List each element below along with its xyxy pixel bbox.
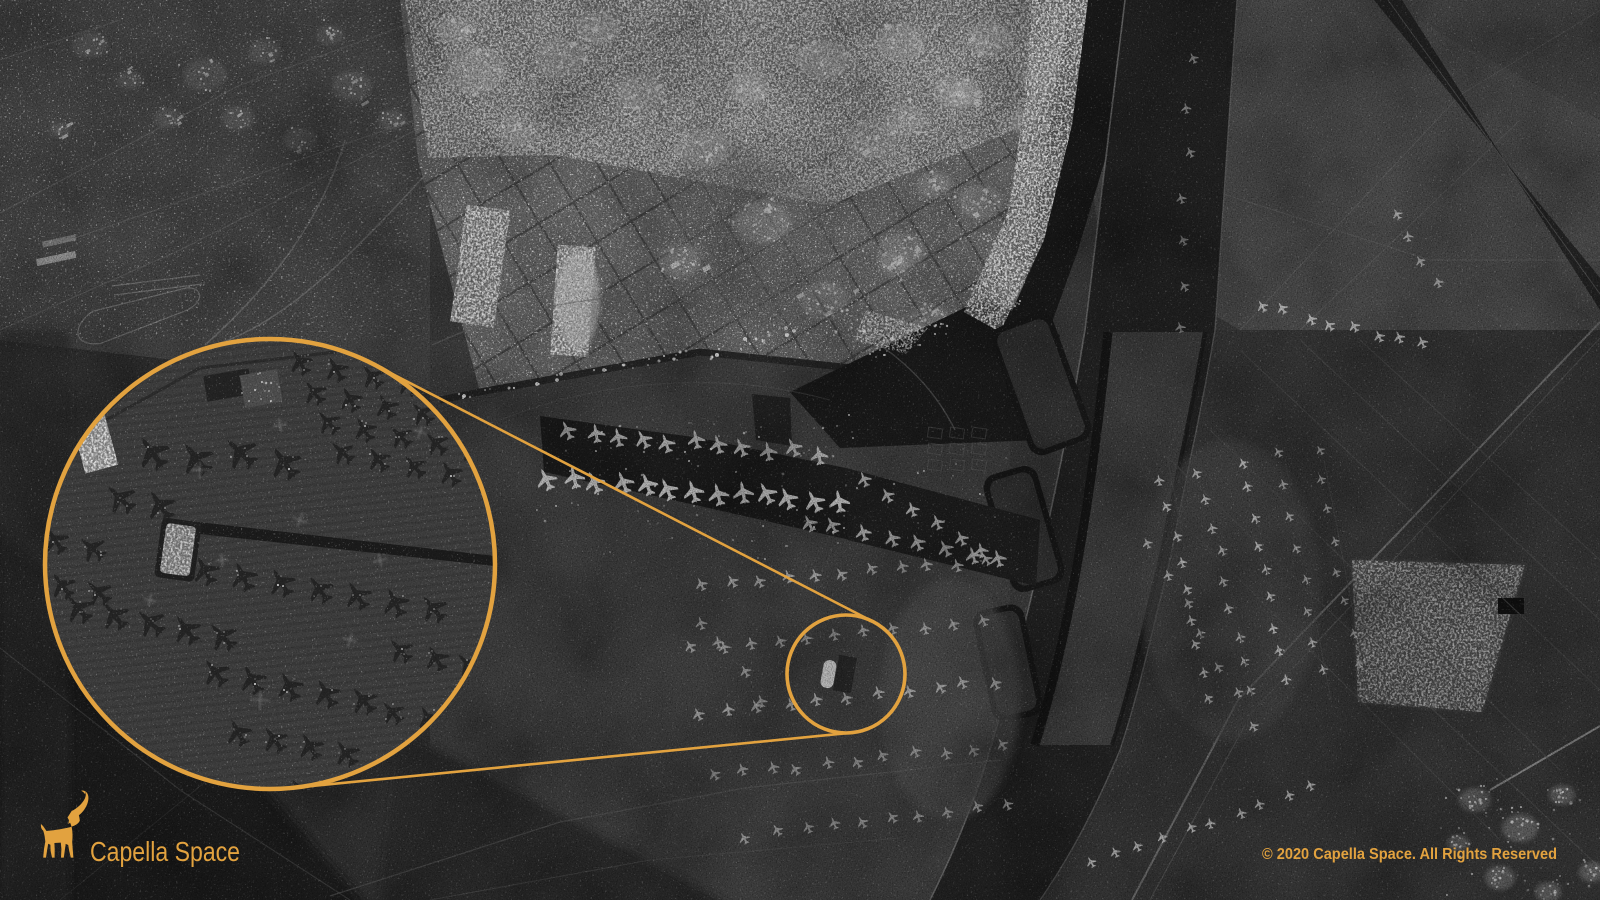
svg-text:Capella Space: Capella Space (90, 836, 240, 867)
svg-text:© 2020 Capella Space. All Righ: © 2020 Capella Space. All Rights Reserve… (1262, 846, 1557, 863)
